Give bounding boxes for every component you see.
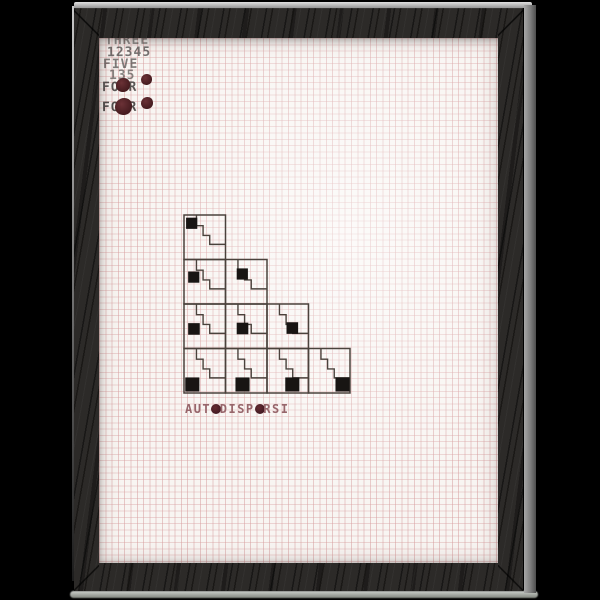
ink-blob	[116, 78, 130, 92]
title-letter: T	[202, 402, 209, 416]
frame-wood-face: THREE12345FIVE135FOURFOUR AUTODISPERSI	[74, 8, 523, 591]
title-letter: S	[272, 402, 279, 416]
title-letter: P	[246, 402, 253, 416]
title-letter: I	[281, 402, 288, 416]
black-square	[235, 377, 249, 391]
title-letter: I	[229, 402, 236, 416]
graph-paper: THREE12345FIVE135FOURFOUR AUTODISPERSI	[99, 38, 498, 563]
frame-miter-top-right	[498, 8, 523, 38]
picture-frame: THREE12345FIVE135FOURFOUR AUTODISPERSI	[72, 2, 536, 595]
stair-line	[196, 349, 225, 378]
black-square	[237, 323, 249, 335]
staircase-pattern	[183, 214, 351, 394]
black-square	[287, 322, 299, 334]
frame-miter-bottom-right	[498, 565, 523, 591]
black-square	[285, 377, 299, 391]
stair-line	[279, 349, 308, 378]
black-square	[335, 377, 349, 391]
stair-line	[321, 349, 350, 378]
title-letter: D	[220, 402, 227, 416]
title-letter: R	[263, 402, 270, 416]
stair-line	[196, 304, 225, 333]
ink-blob	[141, 97, 153, 109]
stair-line	[196, 215, 225, 244]
ink-blob	[115, 98, 132, 115]
black-square	[188, 272, 199, 283]
title-letter: S	[237, 402, 244, 416]
product-photo: THREE12345FIVE135FOURFOUR AUTODISPERSI	[0, 0, 600, 600]
black-square	[188, 323, 200, 335]
pattern-cell	[226, 260, 268, 305]
ink-blob	[141, 74, 152, 85]
stair-line	[196, 260, 225, 289]
title-letter: A	[185, 402, 192, 416]
black-square	[237, 268, 248, 279]
frame-right-edge-highlight	[524, 5, 536, 593]
title-letter: U	[194, 402, 201, 416]
stair-line	[238, 349, 267, 378]
black-square	[186, 218, 197, 229]
frame-miter-bottom-left	[74, 565, 99, 591]
black-square	[185, 377, 199, 391]
frame-miter-top-left	[74, 8, 99, 38]
stamp-text-block: THREE12345FIVE135FOURFOUR	[99, 38, 189, 133]
